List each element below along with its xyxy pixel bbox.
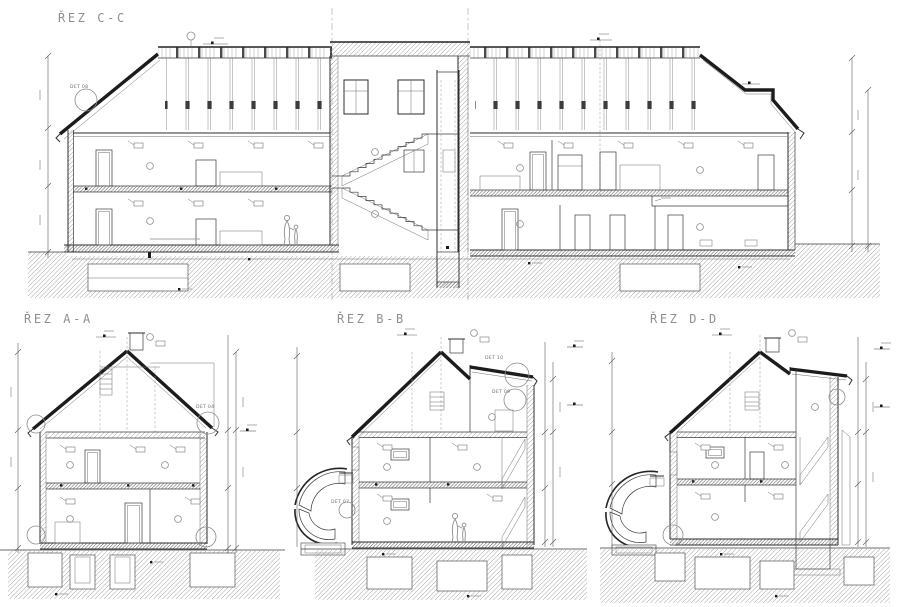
section-title-b: ŘEZ B-B bbox=[337, 311, 406, 326]
ground-foundation bbox=[600, 545, 890, 603]
left-wing bbox=[56, 47, 339, 252]
spiral-staircase bbox=[295, 468, 353, 555]
interior-stairs bbox=[800, 437, 828, 542]
ground-foundation bbox=[0, 550, 285, 599]
section-rez-c-c: ŘEZ C-C bbox=[0, 0, 900, 307]
elevator-shaft bbox=[437, 70, 459, 288]
section-rez-b-b: ŘEZ B-B bbox=[287, 307, 600, 607]
svg-text:DET 09: DET 09 bbox=[492, 389, 510, 395]
annotation-flags-left bbox=[128, 141, 323, 224]
detail-callouts bbox=[663, 389, 845, 545]
architectural-sections-sheet: ŘEZ C-C bbox=[0, 0, 900, 607]
elevation-markers bbox=[712, 329, 891, 407]
section-title-c: ŘEZ C-C bbox=[58, 10, 127, 25]
attic-ladder bbox=[430, 392, 444, 410]
svg-text:DET 10: DET 10 bbox=[485, 355, 503, 361]
roof bbox=[28, 333, 218, 437]
section-title-a: ŘEZ A-A bbox=[24, 311, 93, 326]
attic-ladder bbox=[745, 392, 759, 410]
svg-text:DET 04: DET 04 bbox=[196, 404, 214, 410]
detail-callouts: DET 04 bbox=[27, 404, 219, 547]
human-figure bbox=[452, 513, 466, 543]
svg-text:DET 08: DET 08 bbox=[70, 84, 88, 90]
walls-floors bbox=[40, 432, 207, 549]
section-title-d: ŘEZ D-D bbox=[650, 311, 719, 326]
section-rez-a-a: ŘEZ A-A bbox=[0, 307, 290, 607]
right-wing bbox=[470, 47, 804, 256]
human-figure bbox=[284, 215, 298, 245]
spiral-staircase bbox=[606, 471, 664, 555]
ground-foundation bbox=[301, 549, 587, 600]
dimension-chain-right bbox=[849, 55, 871, 252]
stair-tower bbox=[330, 42, 470, 252]
roof bbox=[665, 335, 852, 441]
svg-text:DET 07: DET 07 bbox=[331, 499, 349, 505]
dimension-chains bbox=[294, 342, 560, 547]
dimension-chain-left bbox=[40, 53, 51, 258]
section-rez-d-d: ŘEZ D-D bbox=[600, 307, 900, 607]
staircase bbox=[332, 134, 458, 240]
elevation-markers bbox=[96, 331, 257, 431]
interior-stairs bbox=[502, 437, 525, 547]
